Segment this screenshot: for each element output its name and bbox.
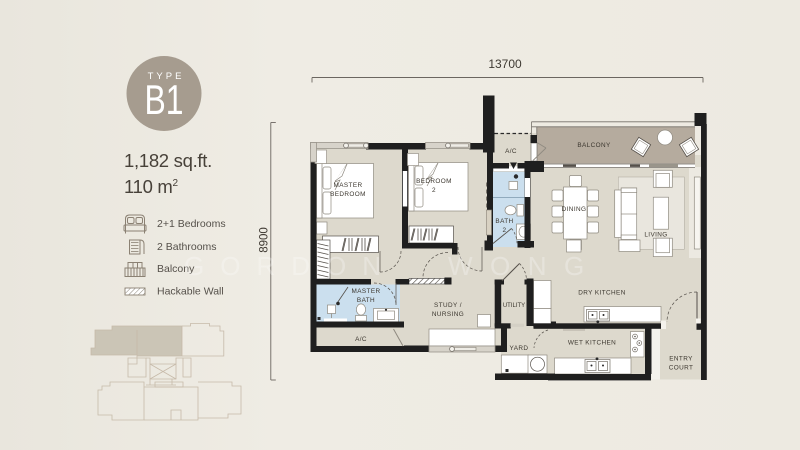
svg-text:A/C: A/C: [355, 336, 367, 343]
svg-text:DRY KITCHEN: DRY KITCHEN: [578, 290, 626, 297]
svg-text:UTILITY: UTILITY: [503, 303, 525, 309]
svg-text:BALCONY: BALCONY: [577, 142, 611, 149]
svg-text:2+1 Bedrooms: 2+1 Bedrooms: [157, 218, 226, 230]
svg-text:NURSING: NURSING: [432, 311, 464, 318]
svg-text:110 m2: 110 m2: [124, 176, 179, 197]
svg-text:WONG: WONG: [448, 251, 602, 281]
svg-text:Hackable Wall: Hackable Wall: [157, 286, 224, 298]
svg-text:COURT: COURT: [669, 365, 694, 372]
svg-text:2: 2: [503, 227, 507, 234]
svg-text:STUDY /: STUDY /: [434, 302, 462, 309]
svg-text:BATH: BATH: [495, 218, 513, 225]
svg-text:A/C: A/C: [505, 148, 517, 155]
svg-text:ENTRY: ENTRY: [669, 356, 693, 363]
svg-text:2: 2: [432, 187, 436, 194]
svg-text:BATH: BATH: [357, 297, 375, 304]
svg-text:DINING: DINING: [562, 206, 587, 213]
svg-text:1,182 sq.ft.: 1,182 sq.ft.: [124, 150, 212, 171]
svg-text:MASTER: MASTER: [333, 182, 362, 189]
svg-text:YARD: YARD: [510, 345, 529, 352]
svg-text:WET KITCHEN: WET KITCHEN: [568, 340, 616, 347]
svg-text:BEDROOM: BEDROOM: [416, 178, 452, 185]
svg-text:LIVING: LIVING: [644, 232, 667, 239]
svg-text:BEDROOM: BEDROOM: [330, 191, 366, 198]
svg-text:MASTER: MASTER: [351, 288, 380, 295]
svg-text:B1: B1: [145, 76, 184, 123]
svg-text:8900: 8900: [259, 227, 271, 253]
svg-text:GORDON: GORDON: [184, 251, 397, 281]
svg-text:13700: 13700: [488, 57, 522, 71]
